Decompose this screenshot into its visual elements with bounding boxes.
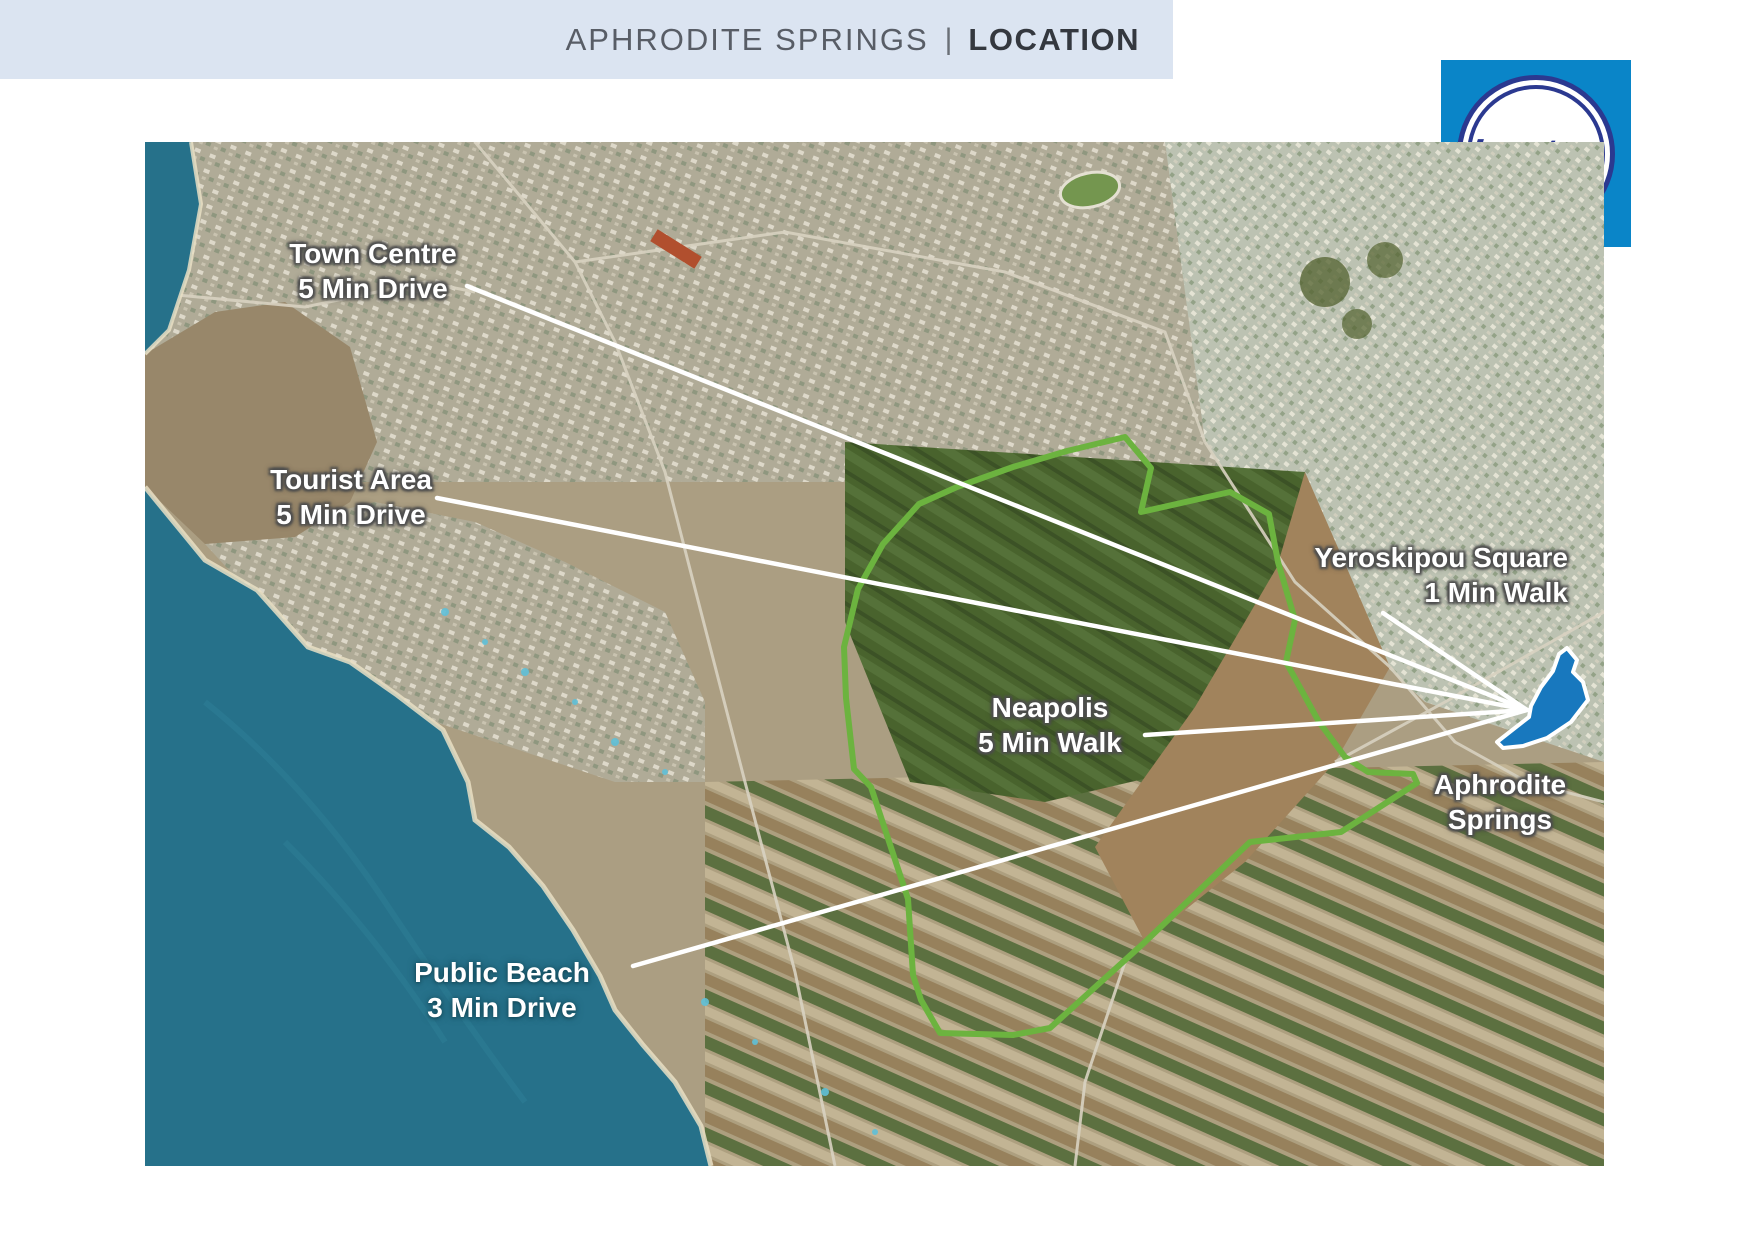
tree-patch xyxy=(1367,242,1403,278)
slide-title-section: LOCATION xyxy=(968,22,1140,58)
title-divider: | xyxy=(945,23,953,57)
label-neapolis-line1: Neapolis xyxy=(978,690,1122,725)
label-aphrodite-springs-line2: Springs xyxy=(1434,802,1566,837)
label-yeroskipou-square-line1: Yeroskipou Square xyxy=(1314,540,1568,575)
label-tourist-area-line1: Tourist Area xyxy=(270,462,432,497)
label-town-centre-line1: Town Centre xyxy=(289,236,456,271)
slide-title-project: APHRODITE SPRINGS xyxy=(566,22,929,58)
location-slide: APHRODITE SPRINGS | LOCATION Leptos xyxy=(0,0,1754,1241)
label-public-beach-line2: 3 Min Drive xyxy=(414,990,590,1025)
label-tourist-area: Tourist Area 5 Min Drive xyxy=(270,462,432,532)
label-aphrodite-springs-line1: Aphrodite xyxy=(1434,767,1566,802)
label-town-centre: Town Centre 5 Min Drive xyxy=(289,236,456,306)
header-banner: APHRODITE SPRINGS | LOCATION xyxy=(0,0,1173,79)
label-aphrodite-springs: Aphrodite Springs xyxy=(1434,767,1566,837)
label-yeroskipou-square: Yeroskipou Square 1 Min Walk xyxy=(1314,540,1568,610)
label-public-beach: Public Beach 3 Min Drive xyxy=(414,955,590,1025)
label-public-beach-line1: Public Beach xyxy=(414,955,590,990)
satellite-map: Town Centre 5 Min Drive Tourist Area 5 M… xyxy=(145,142,1604,1166)
label-neapolis-line2: 5 Min Walk xyxy=(978,725,1122,760)
tree-patch xyxy=(1342,309,1372,339)
label-yeroskipou-square-line2: 1 Min Walk xyxy=(1314,575,1568,610)
tree-patch xyxy=(1300,257,1350,307)
label-tourist-area-line2: 5 Min Drive xyxy=(270,497,432,532)
label-town-centre-line2: 5 Min Drive xyxy=(289,271,456,306)
label-neapolis: Neapolis 5 Min Walk xyxy=(978,690,1122,760)
